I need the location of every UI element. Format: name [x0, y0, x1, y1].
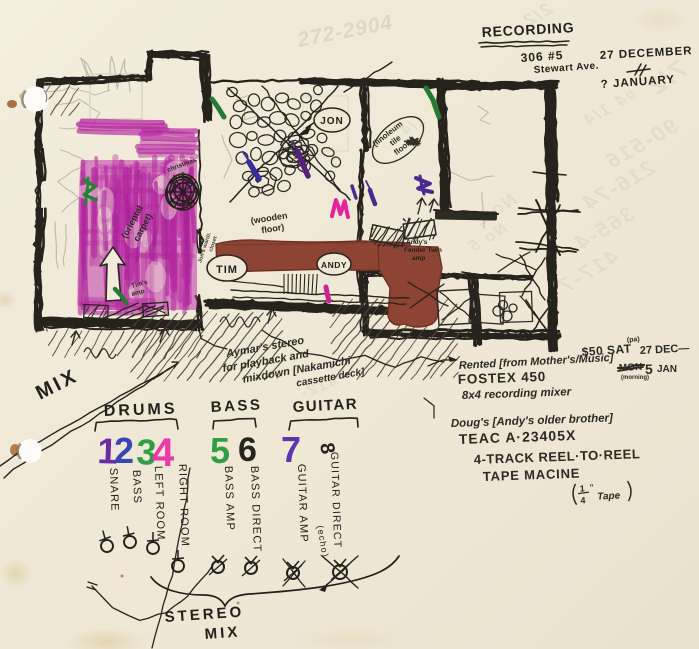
svg-text:(pa): (pa) — [627, 336, 640, 344]
svg-text:(morning): (morning) — [621, 375, 649, 381]
svg-text:BASS: BASS — [210, 396, 263, 416]
svg-text:amp: amp — [412, 255, 425, 262]
svg-text:TIM: TIM — [216, 264, 238, 276]
svg-text:JON: JON — [320, 116, 344, 127]
svg-text:Fender Twin: Fender Twin — [404, 247, 442, 254]
svg-text:1: 1 — [580, 483, 586, 493]
svg-text:BASS: BASS — [130, 470, 143, 505]
svg-text:DRUMS: DRUMS — [104, 400, 178, 420]
svg-text:BASS AMP: BASS AMP — [222, 466, 236, 532]
svg-text:": " — [590, 483, 594, 492]
svg-text:5: 5 — [210, 430, 230, 471]
svg-text:6: 6 — [238, 431, 257, 469]
svg-text:MIX: MIX — [204, 624, 241, 643]
svg-text:FOSTEX 450: FOSTEX 450 — [458, 369, 547, 387]
svg-text:Tape: Tape — [597, 490, 621, 502]
svg-text:4: 4 — [580, 495, 586, 505]
svg-text:Andy's: Andy's — [406, 239, 428, 246]
svg-text:2: 2 — [114, 430, 134, 471]
svg-text:JAN: JAN — [657, 364, 677, 375]
svg-text:SNARE: SNARE — [107, 468, 121, 512]
svg-text:ANDY: ANDY — [321, 260, 347, 270]
svg-text:GUITAR: GUITAR — [292, 396, 358, 416]
